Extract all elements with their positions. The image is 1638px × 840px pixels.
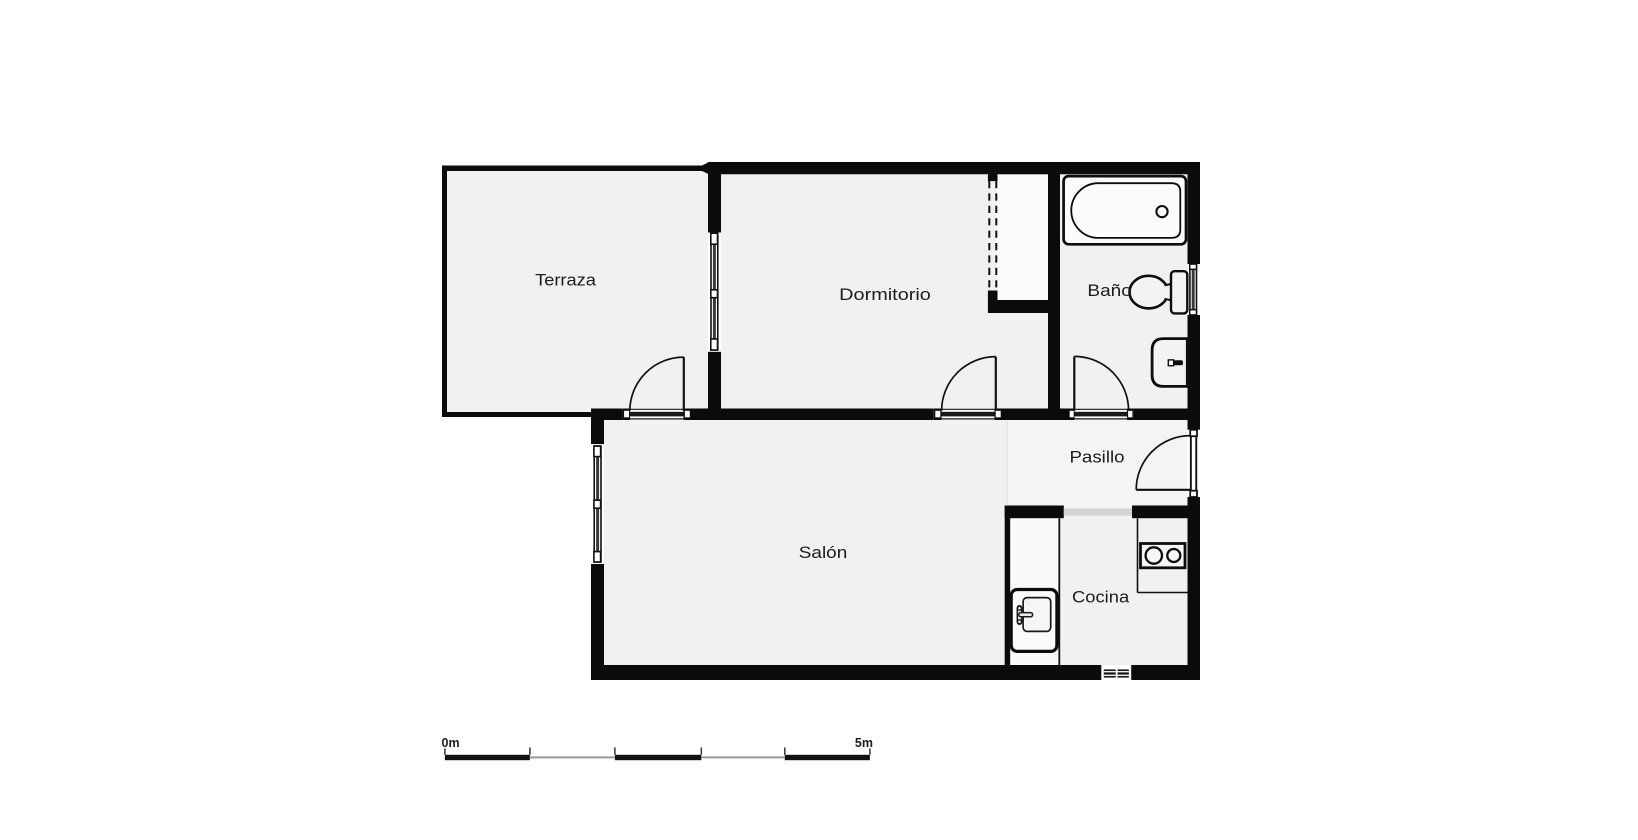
svg-text:Cocina: Cocina (1072, 587, 1129, 606)
svg-text:Terraza: Terraza (535, 270, 596, 289)
svg-text:0m: 0m (442, 736, 460, 750)
svg-text:Pasillo: Pasillo (1069, 447, 1124, 466)
svg-text:Salón: Salón (799, 543, 847, 562)
svg-text:5m: 5m (855, 736, 873, 750)
svg-text:Baño: Baño (1087, 281, 1131, 300)
svg-text:Dormitorio: Dormitorio (839, 284, 931, 303)
